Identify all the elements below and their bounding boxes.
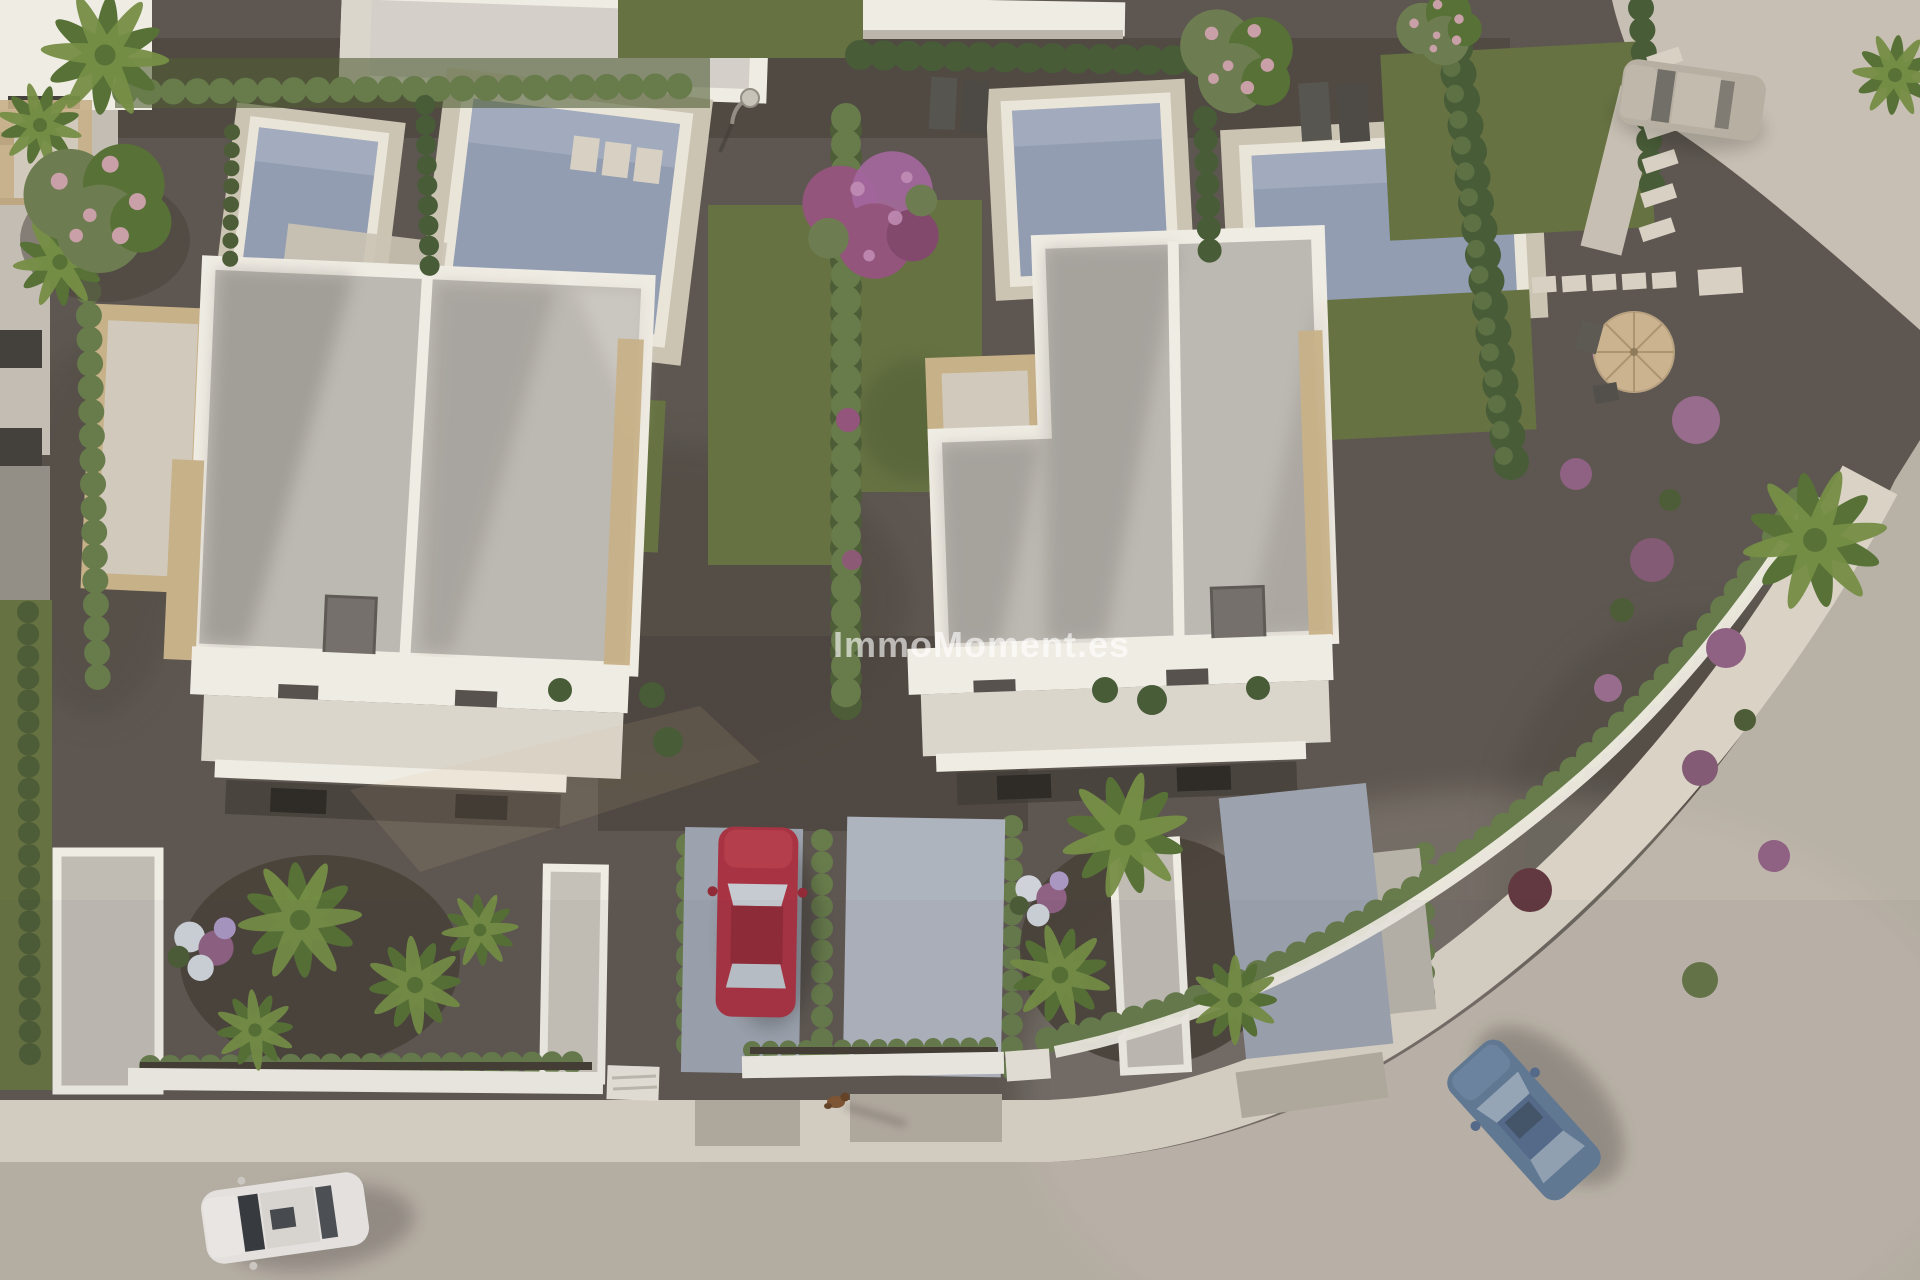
watermark-text: ImmoMoment.es (833, 624, 1130, 665)
aerial-render: ImmoMoment.es (0, 0, 1920, 1280)
